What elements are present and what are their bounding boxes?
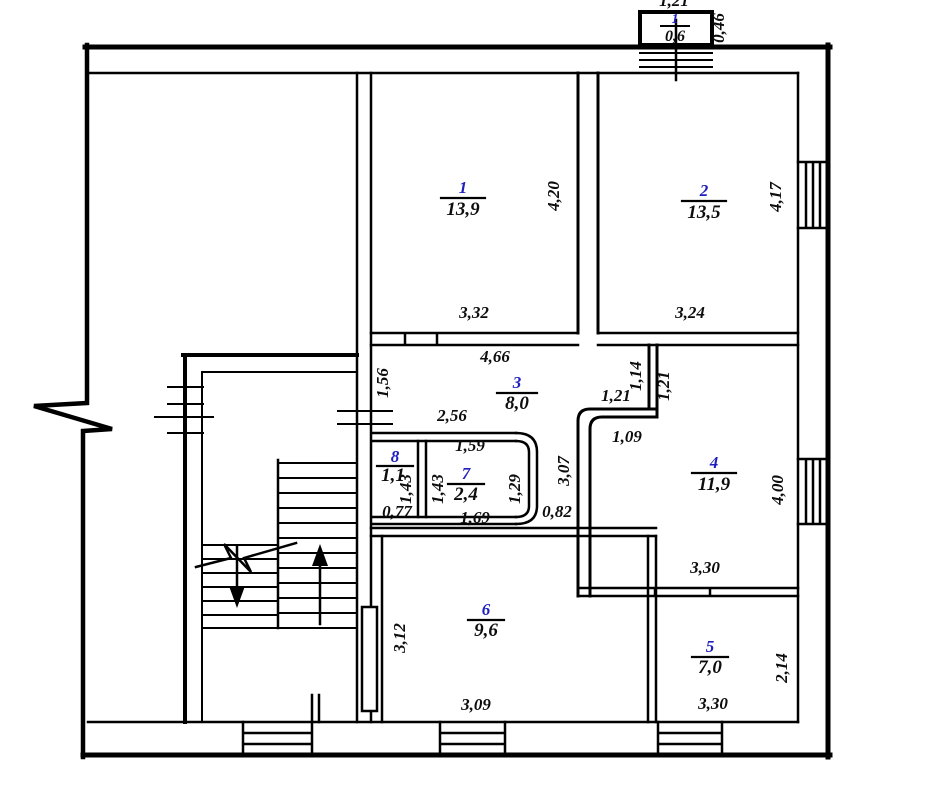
- wall-corridor-top: [371, 333, 798, 345]
- dim-passage-width: 0,82: [542, 502, 572, 521]
- room-6-area: 9,6: [474, 620, 498, 641]
- room-1-area: 13,9: [446, 199, 480, 220]
- stair-down-arrow-head: [229, 586, 245, 608]
- dim-room2-height: 4,17: [766, 181, 785, 213]
- room-4-area: 11,9: [698, 474, 731, 495]
- landing-stub-wall: [312, 695, 319, 722]
- room-7-number: 7: [462, 464, 472, 483]
- floor-plan: 1,21 1 0,6 0,46 1 13,9 3,32 4,20 2 13,5 …: [0, 0, 931, 800]
- interior-walls: [357, 73, 798, 722]
- dim-room8-height: 1,43: [396, 474, 415, 504]
- dim-room2-width: 3,24: [674, 303, 705, 322]
- room-8-number: 8: [391, 447, 400, 466]
- dim-room6-width: 3,09: [460, 695, 491, 714]
- bottom-wall-windows: [243, 722, 722, 755]
- dim-room4-width: 3,30: [689, 558, 720, 577]
- dim-room3-nook-height: 1,21: [654, 371, 673, 401]
- room-5-area: 7,0: [698, 657, 722, 678]
- dim-room3-door: 1,14: [626, 361, 645, 391]
- dim-room7-top: 1,59: [455, 436, 485, 455]
- dim-balcony-top: 1,21: [659, 0, 689, 10]
- dim-room7-left: 1,43: [428, 474, 447, 504]
- dim-room1-height: 4,20: [544, 181, 563, 212]
- dim-room3-left: 1,56: [373, 368, 392, 398]
- dim-room4-height: 4,00: [768, 475, 787, 506]
- window-room6: [440, 722, 505, 755]
- room-3-area: 8,0: [505, 393, 529, 414]
- wall-room7-room8: [418, 441, 426, 517]
- window-bottom-left: [243, 722, 312, 755]
- stair-up-arrow-head: [312, 544, 328, 566]
- dim-room7-right: 1,29: [505, 474, 524, 504]
- room-7-area: 2,4: [453, 484, 478, 505]
- room-balcony-area: 0,6: [665, 28, 685, 45]
- wall-room4-room5: [578, 588, 798, 596]
- wall-room78-top: [373, 433, 516, 441]
- dim-room1-width: 3,32: [458, 303, 489, 322]
- dim-room5-width: 3,30: [697, 694, 728, 713]
- dim-passage-length: 3,07: [554, 455, 573, 487]
- left-wall-with-break: [34, 45, 112, 757]
- room-2-area: 13,5: [687, 202, 721, 223]
- dim-room3-bottom: 1,09: [612, 427, 642, 446]
- room-3-number: 3: [512, 373, 522, 392]
- room-labels: 1,21 1 0,6 0,46 1 13,9 3,32 4,20 2 13,5 …: [373, 0, 791, 714]
- room-2-number: 2: [699, 181, 709, 200]
- room-5-number: 5: [706, 637, 715, 656]
- room-6-number: 6: [482, 600, 491, 619]
- window-room2: [798, 162, 828, 228]
- dim-room5-height: 2,14: [772, 653, 791, 684]
- dim-room7-bottom: 1,69: [460, 508, 490, 527]
- dim-room6-height: 3,12: [390, 623, 409, 654]
- right-wall-windows: [798, 162, 828, 524]
- wall-room1-room2: [578, 73, 598, 333]
- room-1-number: 1: [459, 178, 468, 197]
- room-4-number: 4: [709, 453, 719, 472]
- door-jamb: [362, 607, 377, 711]
- dim-room3-top: 4,66: [479, 347, 510, 366]
- corridor-wall-ticks: [338, 411, 392, 424]
- wall-room6-top: [371, 528, 656, 536]
- dim-room3-inner: 2,56: [436, 406, 467, 425]
- room-balcony-number: 1: [672, 12, 679, 27]
- floor-plan-drawing: 1,21 1 0,6 0,46 1 13,9 3,32 4,20 2 13,5 …: [0, 0, 931, 800]
- dim-balcony-wall: 0,46: [709, 13, 728, 43]
- window-room5: [658, 722, 722, 755]
- wall-room5-room6: [648, 536, 656, 722]
- window-room4: [798, 459, 828, 524]
